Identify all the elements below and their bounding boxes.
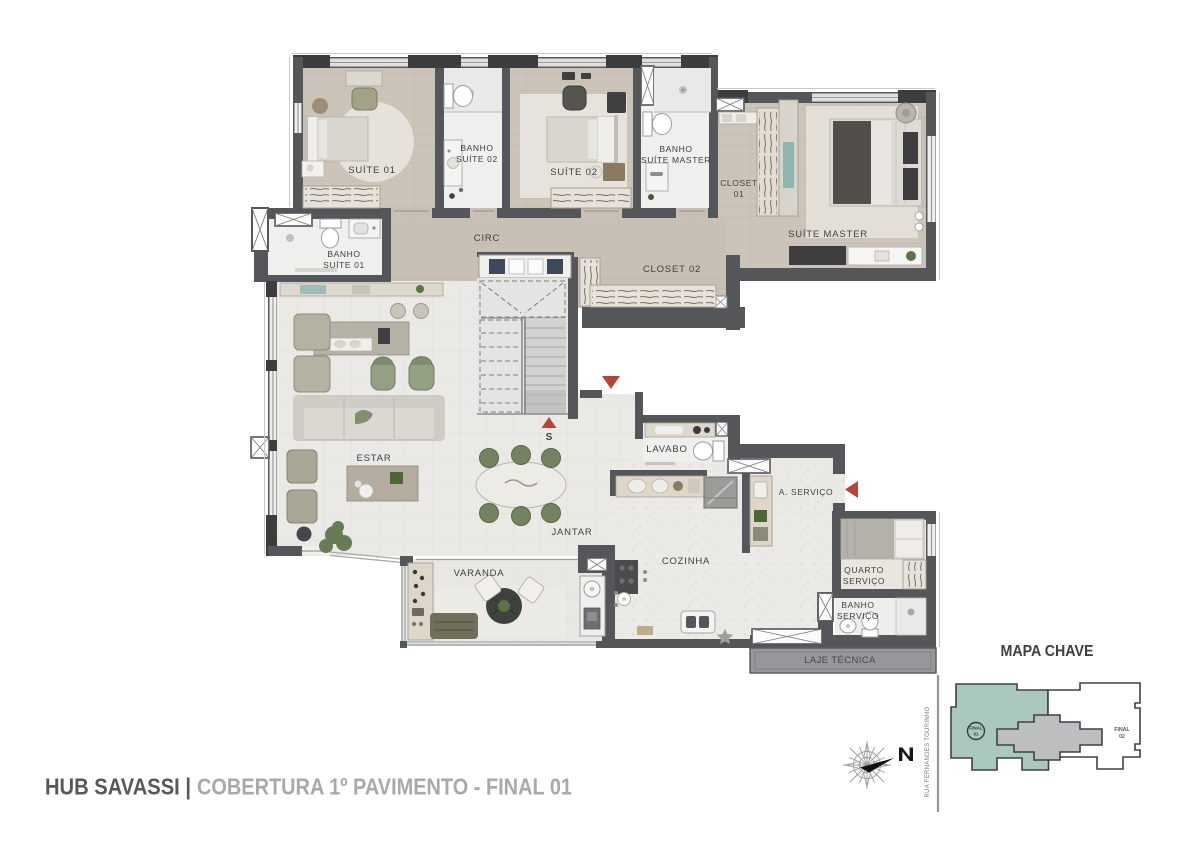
- svg-text:QUARTO: QUARTO: [844, 565, 884, 575]
- svg-text:SERVIÇO: SERVIÇO: [843, 576, 885, 586]
- svg-text:FINAL: FINAL: [1114, 727, 1130, 733]
- svg-text:SERVIÇO: SERVIÇO: [837, 611, 879, 621]
- svg-text:SUÍTE MASTER: SUÍTE MASTER: [788, 229, 868, 240]
- svg-text:A. SERVIÇO: A. SERVIÇO: [779, 487, 834, 497]
- svg-text:BANHO: BANHO: [460, 143, 493, 153]
- svg-text:BANHO: BANHO: [841, 600, 874, 610]
- svg-text:SUÍTE 02: SUÍTE 02: [456, 154, 498, 164]
- svg-text:01: 01: [973, 732, 979, 737]
- svg-text:RUA FERNANDES TOURINHO: RUA FERNANDES TOURINHO: [925, 706, 931, 797]
- svg-text:SUÍTE MASTER: SUÍTE MASTER: [641, 155, 711, 165]
- svg-text:ESTAR: ESTAR: [357, 453, 392, 464]
- svg-text:SUÍTE 01: SUÍTE 01: [348, 165, 396, 176]
- svg-text:CLOSET 02: CLOSET 02: [643, 264, 701, 275]
- svg-text:FINAL: FINAL: [969, 726, 983, 731]
- svg-text:CIRC: CIRC: [474, 233, 500, 244]
- svg-text:SUÍTE 01: SUÍTE 01: [323, 260, 365, 270]
- svg-text:LAVABO: LAVABO: [646, 444, 687, 455]
- svg-text:SUÍTE 02: SUÍTE 02: [550, 167, 598, 178]
- svg-text:CLOSET: CLOSET: [720, 178, 758, 188]
- svg-text:JANTAR: JANTAR: [551, 527, 592, 538]
- svg-text:VARANDA: VARANDA: [454, 568, 505, 579]
- svg-text:S: S: [546, 432, 553, 443]
- svg-text:01: 01: [734, 189, 745, 199]
- svg-text:MAPA CHAVE: MAPA CHAVE: [1001, 643, 1094, 660]
- svg-text:COBERTURA 1º PAVIMENTO - FINAL: COBERTURA 1º PAVIMENTO - FINAL 01: [197, 774, 572, 800]
- svg-text:BANHO: BANHO: [327, 249, 360, 259]
- svg-text:LAJE TÉCNICA: LAJE TÉCNICA: [804, 655, 876, 666]
- svg-text:BANHO: BANHO: [659, 144, 692, 154]
- svg-text:02: 02: [1119, 734, 1125, 740]
- svg-text:HUB SAVASSI |: HUB SAVASSI |: [45, 774, 191, 800]
- svg-text:COZINHA: COZINHA: [662, 556, 710, 567]
